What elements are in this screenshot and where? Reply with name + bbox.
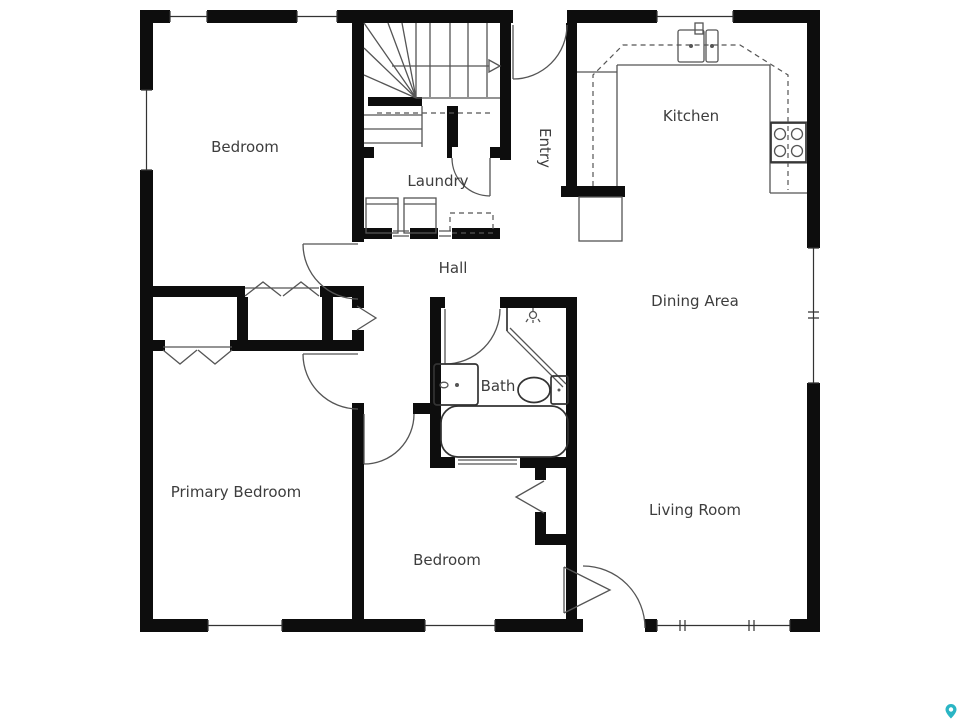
bifold-door-bedroom-top-closet <box>245 282 319 296</box>
window <box>425 619 495 632</box>
window <box>170 10 207 23</box>
floor-plan: Bedroom Laundry Entry Kitchen Hall Dinin… <box>0 0 960 720</box>
living-room-label: Living Room <box>649 501 741 519</box>
window <box>807 248 820 383</box>
kitchen-sink <box>678 23 718 62</box>
entry-label: Entry <box>536 128 554 168</box>
bedroom-top-label: Bedroom <box>211 138 279 156</box>
laundry-fixtures <box>366 198 493 233</box>
staircase <box>364 23 500 147</box>
bifold-door-bedroom-bottom-closet <box>516 481 544 513</box>
toilet <box>518 376 568 404</box>
primary-bedroom-label: Primary Bedroom <box>171 483 302 501</box>
bathtub <box>441 406 568 457</box>
door-bath <box>445 309 500 364</box>
watermark-pin-icon <box>946 704 957 719</box>
refrigerator <box>579 197 622 241</box>
hall-label: Hall <box>439 259 468 277</box>
window <box>140 90 153 170</box>
window <box>208 619 282 632</box>
window <box>657 10 733 23</box>
window <box>297 10 337 23</box>
door-bedroom-bottom <box>364 414 414 464</box>
kitchen-counters <box>577 65 807 193</box>
kitchen-fixtures <box>577 23 807 241</box>
door-entry-back <box>513 25 567 79</box>
stairs-up-arrow <box>392 60 500 72</box>
bedroom-bottom-label: Bedroom <box>413 551 481 569</box>
floor-plan-page: Bedroom Laundry Entry Kitchen Hall Dinin… <box>0 0 960 720</box>
shower-head-icon <box>526 308 540 323</box>
bath-label: Bath <box>481 377 516 395</box>
door-primary-bedroom <box>303 354 358 409</box>
dryer <box>404 198 436 233</box>
kitchen-label: Kitchen <box>663 107 719 125</box>
bifold-door-primary-closet <box>163 347 232 364</box>
washer <box>366 198 398 233</box>
laundry-label: Laundry <box>407 172 468 190</box>
room-labels: Bedroom Laundry Entry Kitchen Hall Dinin… <box>171 107 741 569</box>
door-linen-closet <box>357 306 376 330</box>
dining-area-label: Dining Area <box>651 292 739 310</box>
window <box>657 619 790 632</box>
